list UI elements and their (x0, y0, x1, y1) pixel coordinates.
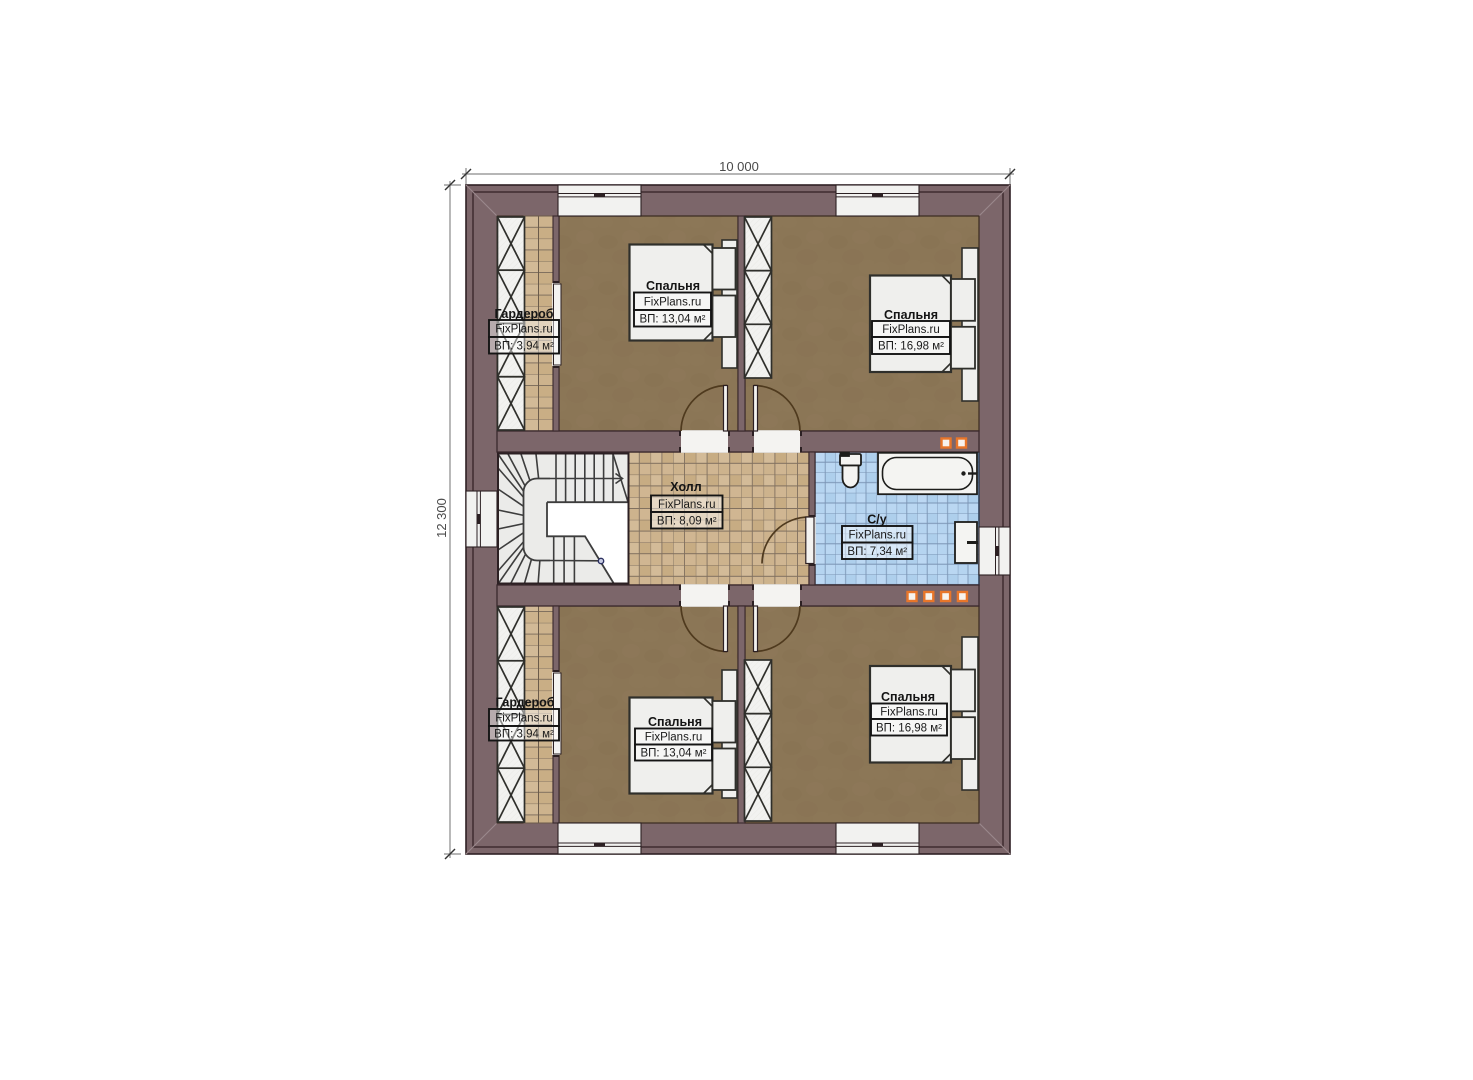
svg-text:FixPlans.ru: FixPlans.ru (882, 324, 940, 336)
svg-text:10 000: 10 000 (719, 159, 759, 174)
svg-text:Холл: Холл (670, 480, 701, 494)
svg-text:FixPlans.ru: FixPlans.ru (848, 529, 906, 541)
svg-text:ВП: 13,04 м²: ВП: 13,04 м² (640, 748, 706, 760)
svg-text:С/у: С/у (867, 513, 887, 527)
svg-text:Спальня: Спальня (646, 279, 700, 293)
svg-text:FixPlans.ru: FixPlans.ru (880, 706, 938, 718)
svg-text:ВП: 3,94 м²: ВП: 3,94 м² (494, 728, 554, 740)
svg-text:Гардероб: Гардероб (495, 696, 554, 710)
svg-text:ВП: 16,98 м²: ВП: 16,98 м² (878, 341, 944, 353)
svg-text:ВП: 8,09 м²: ВП: 8,09 м² (657, 515, 717, 527)
svg-text:12 300: 12 300 (434, 498, 449, 538)
svg-text:FixPlans.ru: FixPlans.ru (644, 296, 702, 308)
svg-text:ВП: 7,34 м²: ВП: 7,34 м² (847, 546, 907, 558)
svg-text:Спальня: Спальня (881, 690, 935, 704)
svg-text:Спальня: Спальня (648, 715, 702, 729)
svg-text:ВП: 3,94 м²: ВП: 3,94 м² (494, 340, 554, 352)
svg-text:ВП: 13,04 м²: ВП: 13,04 м² (639, 313, 705, 325)
svg-text:FixPlans.ru: FixPlans.ru (495, 324, 553, 336)
svg-text:FixPlans.ru: FixPlans.ru (645, 732, 703, 744)
svg-text:ВП: 16,98 м²: ВП: 16,98 м² (876, 722, 942, 734)
svg-text:FixPlans.ru: FixPlans.ru (495, 713, 553, 725)
svg-text:Гардероб: Гардероб (494, 307, 553, 321)
svg-text:Спальня: Спальня (884, 308, 938, 322)
svg-text:FixPlans.ru: FixPlans.ru (658, 499, 716, 511)
